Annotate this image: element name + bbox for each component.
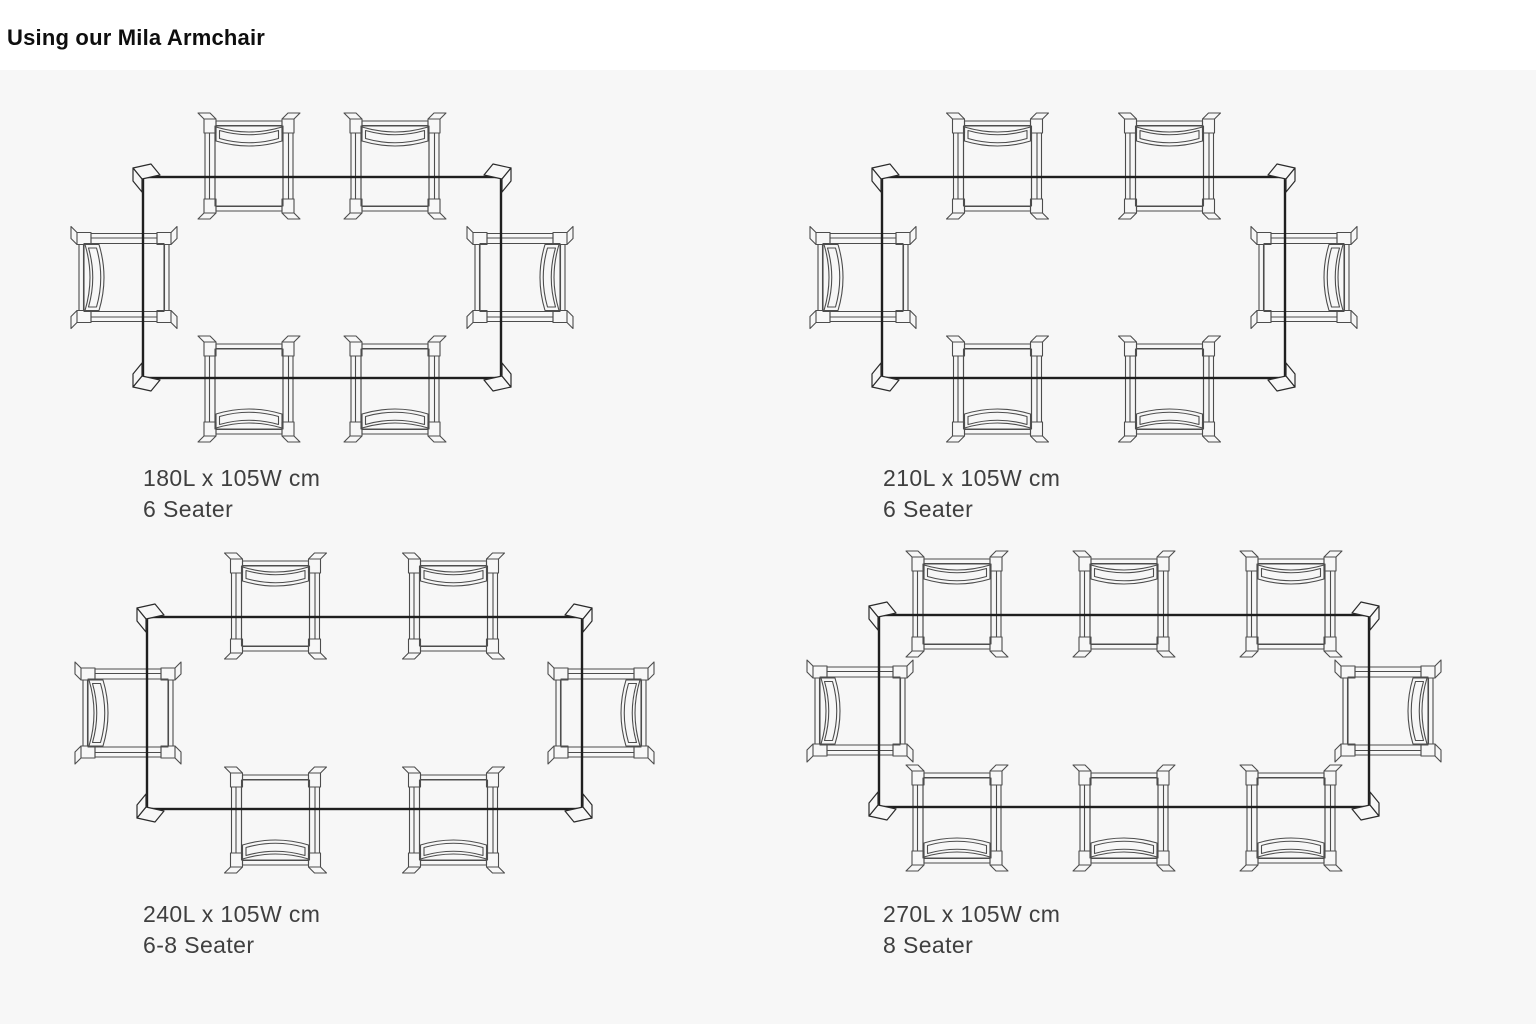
armchair-top-2: [344, 113, 446, 219]
armchair-top-1: [225, 553, 327, 659]
armchair-bottom-1: [198, 336, 300, 442]
armchair-right-end: [467, 227, 573, 329]
diagram-caption-4: 270L x 105W cm 8 Seater: [883, 899, 1060, 961]
armchair-top-3: [1240, 551, 1342, 657]
seating-diagram-3: [75, 553, 654, 873]
armchair-top-2: [1119, 113, 1221, 219]
armchair-right-end: [548, 662, 654, 764]
diagram-caption-1: 180L x 105W cm 6 Seater: [143, 463, 320, 525]
dining-table-outline: [147, 617, 582, 809]
table-dimensions-label: 210L x 105W cm: [883, 463, 1060, 494]
armchair-bottom-1: [906, 765, 1008, 871]
seating-diagram-2: [810, 113, 1357, 442]
armchair-left-end: [75, 662, 181, 764]
seater-label: 8 Seater: [883, 930, 1060, 961]
diagram-caption-2: 210L x 105W cm 6 Seater: [883, 463, 1060, 525]
seater-label: 6 Seater: [143, 494, 320, 525]
armchair-top-2: [1073, 551, 1175, 657]
dining-table-outline: [143, 177, 501, 378]
seater-label: 6-8 Seater: [143, 930, 320, 961]
armchair-top-1: [906, 551, 1008, 657]
armchair-bottom-2: [344, 336, 446, 442]
armchair-left-end: [807, 660, 913, 762]
armchair-left-end: [810, 227, 916, 329]
armchair-bottom-1: [947, 336, 1049, 442]
table-dimensions-label: 180L x 105W cm: [143, 463, 320, 494]
diagram-caption-3: 240L x 105W cm 6-8 Seater: [143, 899, 320, 961]
armchair-bottom-1: [225, 767, 327, 873]
seater-label: 6 Seater: [883, 494, 1060, 525]
dining-table-outline: [882, 177, 1285, 378]
armchair-bottom-3: [1240, 765, 1342, 871]
armchair-top-2: [403, 553, 505, 659]
armchair-bottom-2: [403, 767, 505, 873]
table-dimensions-label: 270L x 105W cm: [883, 899, 1060, 930]
seating-diagram-1: [71, 113, 573, 442]
armchair-top-1: [947, 113, 1049, 219]
armchair-left-end: [71, 227, 177, 329]
table-dimensions-label: 240L x 105W cm: [143, 899, 320, 930]
armchair-top-1: [198, 113, 300, 219]
armchair-bottom-2: [1119, 336, 1221, 442]
armchair-right-end: [1335, 660, 1441, 762]
armchair-bottom-2: [1073, 765, 1175, 871]
seating-diagram-4: [807, 551, 1441, 871]
armchair-right-end: [1251, 227, 1357, 329]
